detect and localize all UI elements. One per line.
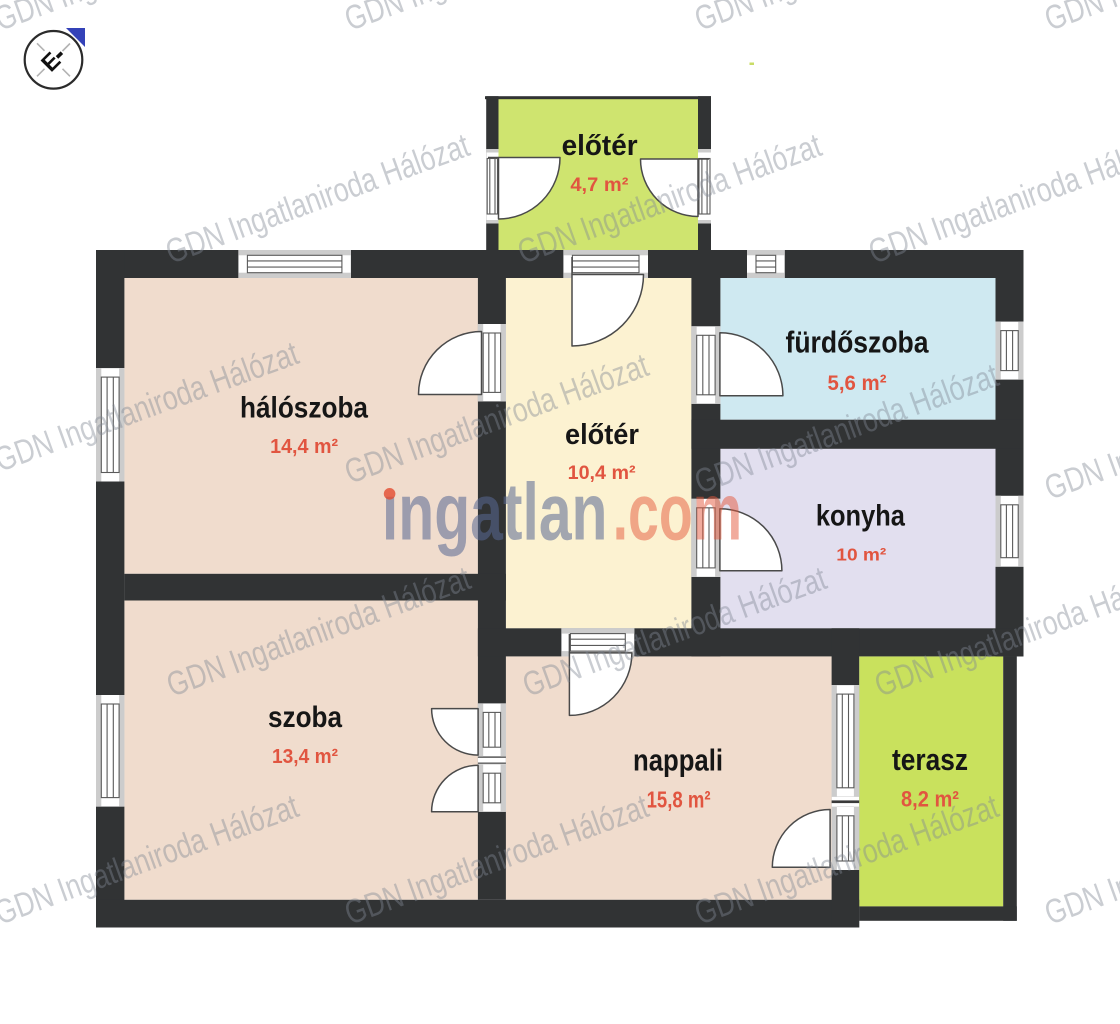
svg-text:hálószoba: hálószoba: [240, 392, 369, 425]
svg-text:15,8 m²: 15,8 m²: [647, 787, 711, 813]
svg-text:konyha: konyha: [816, 500, 905, 533]
svg-text:előtér: előtér: [562, 130, 638, 162]
svg-text:szoba: szoba: [268, 701, 342, 734]
svg-text:14,4 m²: 14,4 m²: [270, 436, 338, 458]
svg-text:10 m²: 10 m²: [836, 545, 886, 565]
svg-text:ıngatlan: ıngatlan: [382, 468, 608, 558]
svg-text:előtér: előtér: [565, 419, 639, 451]
svg-text:fürdőszoba: fürdőszoba: [786, 326, 930, 360]
svg-text:terasz: terasz: [892, 743, 968, 777]
svg-text:5,6 m²: 5,6 m²: [828, 371, 887, 395]
svg-text:4,7 m²: 4,7 m²: [570, 174, 629, 196]
svg-text:nappali: nappali: [633, 743, 723, 778]
svg-text:13,4 m²: 13,4 m²: [272, 745, 338, 768]
